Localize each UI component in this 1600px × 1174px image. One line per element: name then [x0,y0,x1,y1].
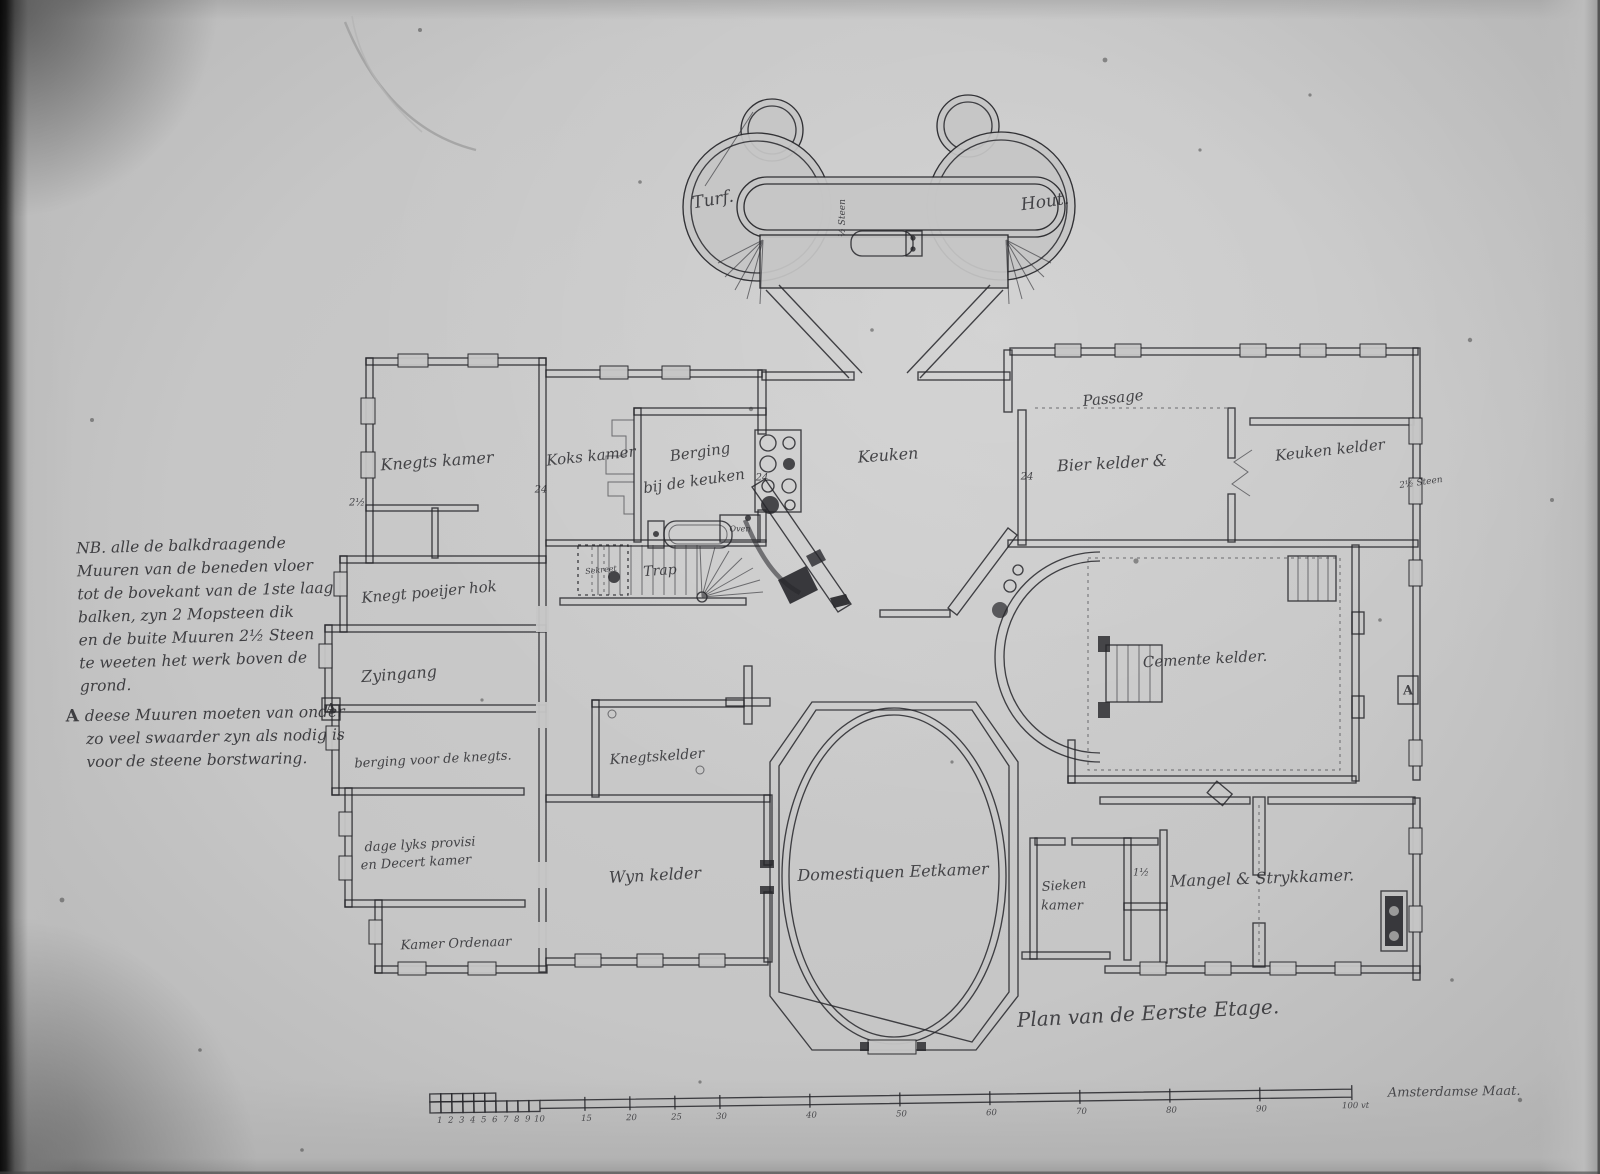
construction-note: NB. alle de balkdraagende Muuren van de … [76,531,336,699]
wall-marker-2half-left: 2½ [349,498,365,509]
scale-tick: 40 [806,1111,817,1121]
scale-tick: 5 [481,1115,487,1125]
scale-tick: 80 [1166,1106,1177,1116]
scale-caption: Amsterdamse Maat. [1388,1084,1521,1101]
scale-tick: 6 [492,1115,498,1125]
scale-tick: 1 [437,1116,443,1126]
note-line: voor de steene borstwaring. [86,747,345,775]
label-trap: Trap [643,562,677,580]
construction-note-a: Adeese Muuren moeten van onder zo veel s… [65,701,345,775]
scale-tick: 8 [514,1115,520,1125]
scale-tick: 15 [581,1114,592,1124]
scale-tick: 4 [470,1115,476,1125]
wall-marker-1half: 1½ [1133,868,1149,879]
scale-end-label: 100 vt [1342,1101,1369,1111]
wall-marker-24-b: 24 [756,473,769,484]
wall-marker-24-a: 24 [535,485,548,496]
scale-tick: 3 [459,1116,465,1126]
scale-tick: 50 [896,1109,907,1119]
label-oven: Oven [730,525,751,534]
annex-turf-hout [683,95,1075,304]
label-sieken-2: kamer [1041,899,1083,914]
scale-tick: 70 [1076,1107,1087,1117]
label-sieken-1: Sieken [1041,877,1087,895]
scale-tick: 25 [671,1112,682,1122]
note-line-text: deese Muuren moeten van onder [85,703,345,726]
annex-passage-funnel [766,285,1003,378]
floorplan-photo: Turf. Hout. ½ Steen Knegts kamer Koks ka… [0,0,1600,1174]
scale-tick: 90 [1256,1104,1267,1114]
room-cemente-walls [995,545,1364,806]
room-sieken-walls [1030,830,1167,963]
wall-marker-24-c: 24 [1021,472,1034,483]
kitchen-smokejack [745,515,850,608]
room-keukenkelder-walls [1250,418,1414,425]
scale-tick: 20 [626,1113,637,1123]
scale-tick: 2 [448,1116,454,1126]
keuken-passage-junction [880,350,1026,618]
room-knegtskamer-walls [366,505,478,558]
reference-markers [322,676,1418,720]
scale-tick: 7 [503,1115,509,1125]
note-a-marker: A [65,706,79,726]
room-knegtskelder-walls [592,666,770,797]
scale-tick: 9 [525,1115,531,1125]
scale-tick: 60 [986,1108,997,1118]
room-bierkelder-walls [1228,408,1252,542]
label-half-steen: ½ Steen [838,199,848,237]
scale-tick: 30 [716,1112,727,1122]
scale-tick: 10 [534,1114,545,1124]
room-kokskamer-walls [606,408,641,542]
wall-marker-a-right: A [1403,684,1413,699]
